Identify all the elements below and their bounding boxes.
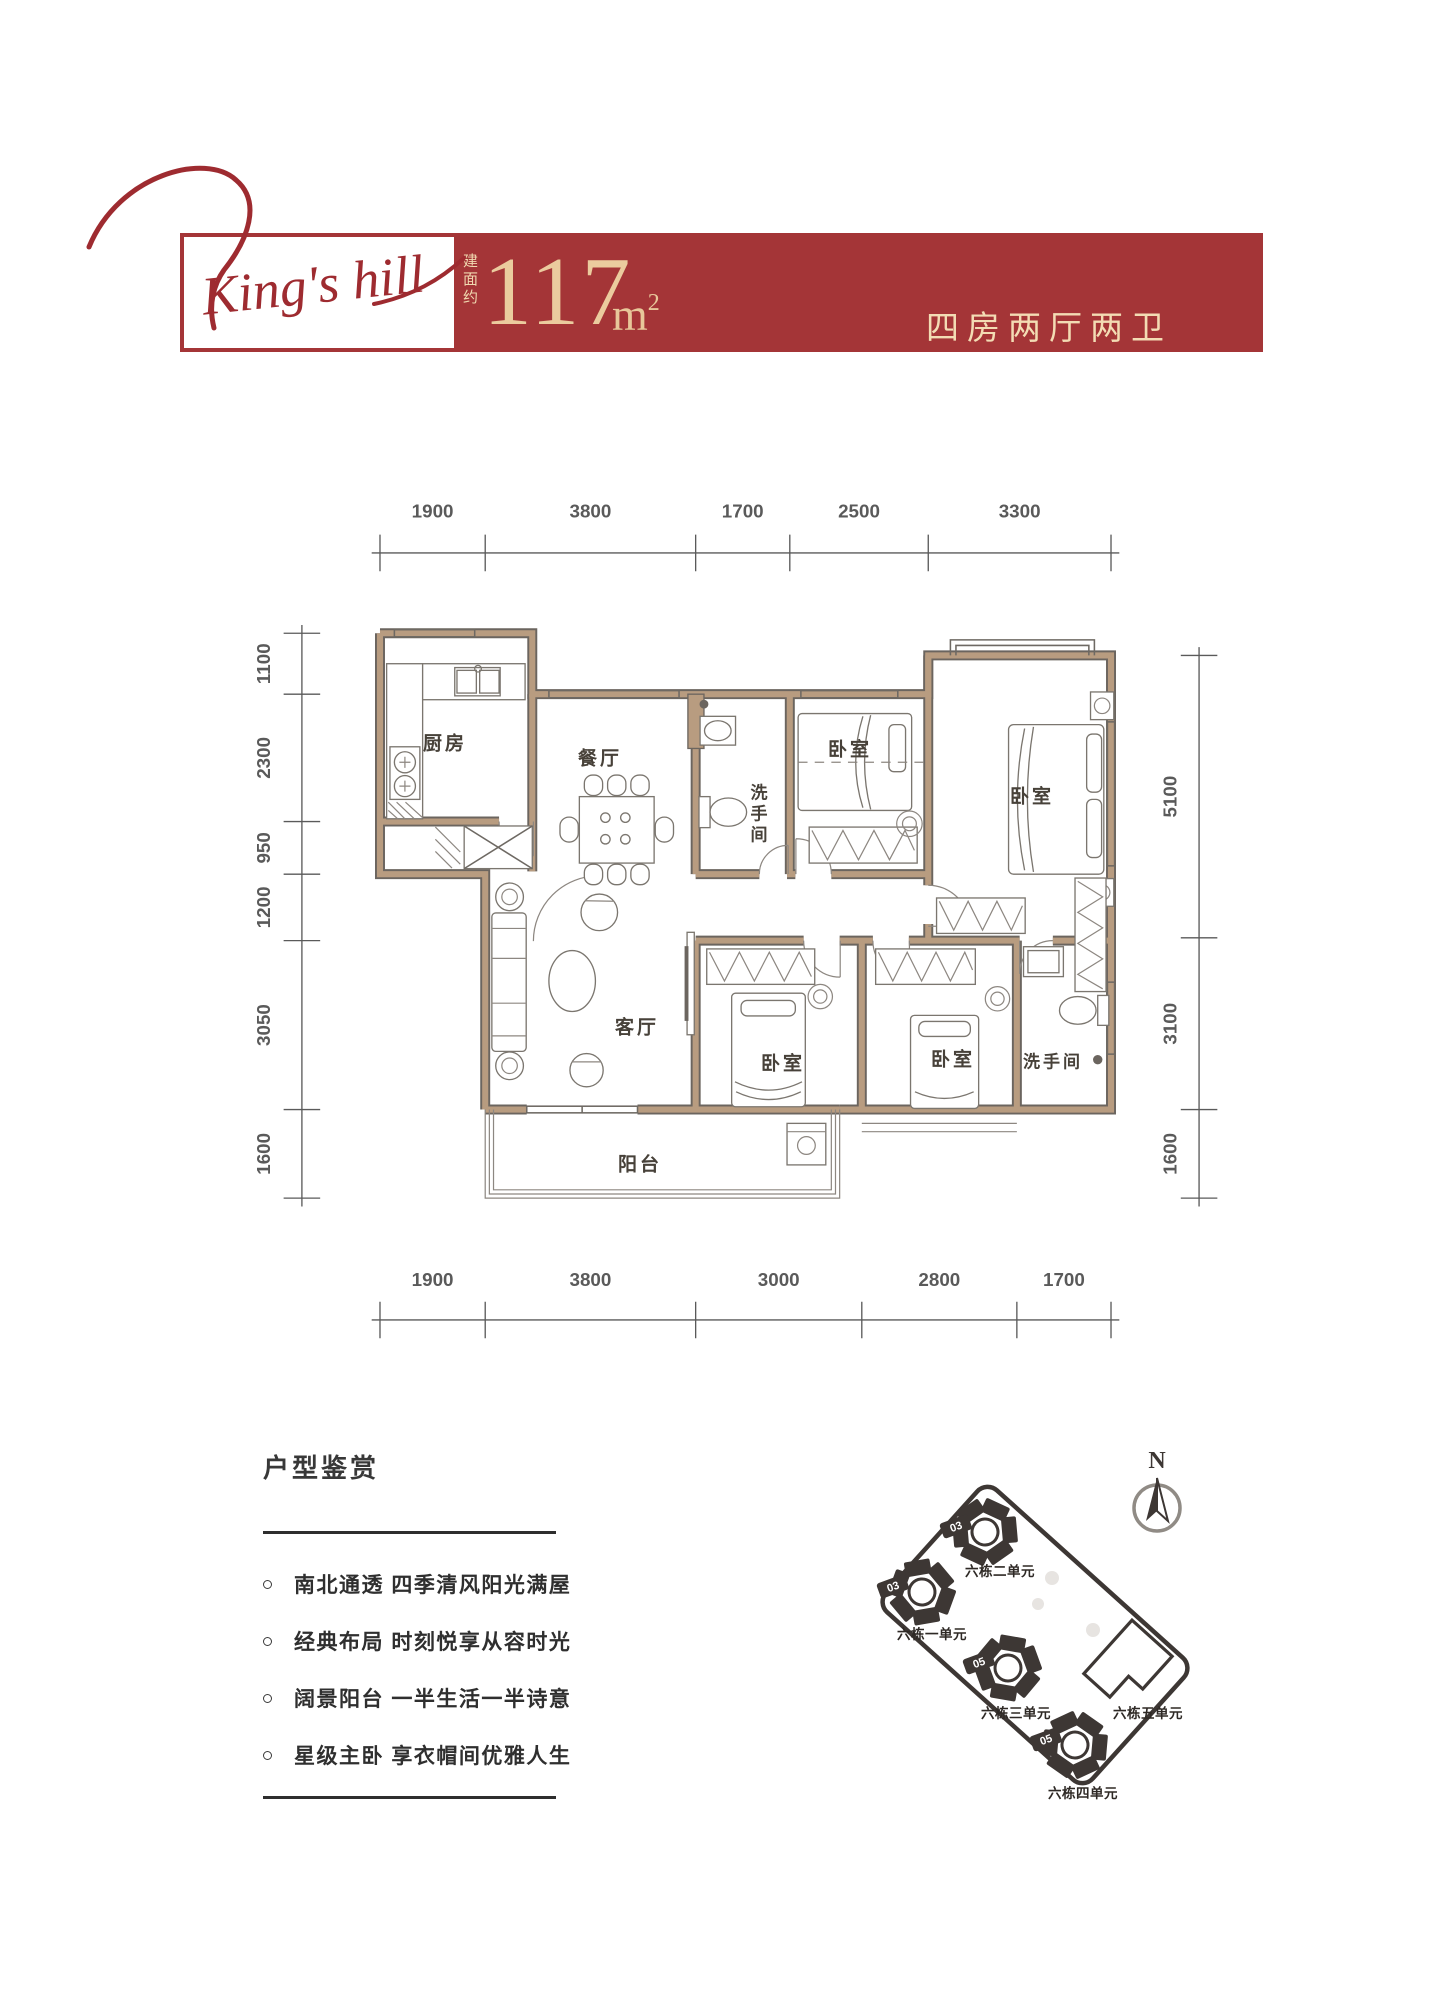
room-label-bath-bottom: 洗手间 — [1023, 1048, 1083, 1073]
floorplan-drawing: 1900 3800 1700 2500 3300 1900 3800 3000 … — [236, 500, 1255, 1348]
site-label-unit-1: 六栋一单元 — [897, 1623, 967, 1643]
appreciation-bullet-2: 经典布局 时刻悦享从容时光 — [263, 1628, 663, 1654]
dim-left-3: 1200 — [253, 886, 274, 928]
bedroom-bottom-2 — [876, 949, 1010, 1108]
divider-bottom — [263, 1796, 556, 1799]
divider-top — [263, 1531, 556, 1534]
balcony-fittings — [787, 1123, 826, 1165]
bathroom-top-fittings — [699, 700, 747, 828]
appreciation-bullet-1: 南北通透 四季清风阳光满屋 — [263, 1571, 663, 1597]
dim-right-1: 3100 — [1159, 1003, 1180, 1045]
dim-left-0: 1100 — [253, 643, 274, 684]
dimension-labels: 1900 3800 1700 2500 3300 1900 3800 3000 … — [253, 501, 1181, 1291]
appreciation-bullet-3: 阔景阳台 一半生活一半诗意 — [263, 1685, 663, 1711]
flyer-page: King's hill 建面约 117 m2 四房两厅两卫 1900 3800 … — [0, 0, 1440, 2003]
dim-bottom-3: 2800 — [918, 1269, 960, 1290]
dim-left-5: 1600 — [253, 1133, 274, 1175]
room-label-kitchen: 厨房 — [423, 729, 467, 756]
dim-left-1: 2300 — [253, 737, 274, 779]
room-label-bath-top: 洗手间 — [745, 784, 770, 847]
bullet-icon — [263, 1694, 272, 1703]
dim-top-0: 1900 — [412, 501, 454, 522]
bullet-text: 经典布局 时刻悦享从容时光 — [294, 1626, 571, 1656]
site-label-unit-4: 六栋四单元 — [1048, 1782, 1118, 1802]
bullet-text: 南北通透 四季清风阳光满屋 — [294, 1569, 571, 1599]
room-label-balcony: 阳台 — [618, 1150, 662, 1177]
kings-hill-logo: King's hill — [74, 152, 474, 362]
bullet-icon — [263, 1751, 272, 1760]
north-label: N — [1148, 1448, 1166, 1474]
dim-right-2: 1600 — [1159, 1133, 1180, 1175]
bullet-text: 阔景阳台 一半生活一半诗意 — [294, 1683, 571, 1713]
room-label-bedroom-1: 卧室 — [761, 1049, 805, 1076]
area-value: 117 — [483, 243, 632, 341]
dim-top-4: 3300 — [999, 501, 1041, 522]
room-label-master-bedroom: 卧室 — [1010, 782, 1054, 809]
dim-bottom-1: 3800 — [570, 1269, 612, 1290]
area-unit-sup: 2 — [648, 290, 660, 316]
compass: N — [1134, 1448, 1180, 1531]
dim-right-0: 5100 — [1159, 776, 1180, 818]
dim-left-4: 3050 — [253, 1004, 274, 1046]
site-label-unit-3: 六栋三单元 — [981, 1702, 1051, 1722]
room-label-bedroom-2: 卧室 — [931, 1045, 975, 1072]
dim-bottom-4: 1700 — [1043, 1269, 1085, 1290]
layout-type-label: 四房两厅两卫 — [926, 301, 1172, 349]
bedroom-bottom-1 — [707, 949, 833, 1107]
dining-table — [560, 775, 674, 885]
appreciation-title: 户型鉴赏 — [263, 1448, 379, 1485]
bullet-text: 星级主卧 享衣帽间优雅人生 — [294, 1740, 571, 1770]
room-label-dining: 餐厅 — [578, 744, 622, 771]
room-label-living: 客厅 — [615, 1013, 659, 1040]
dim-top-2: 1700 — [722, 501, 764, 522]
shaft — [435, 826, 532, 869]
bullet-icon — [263, 1637, 272, 1646]
appreciation-bullet-4: 星级主卧 享衣帽间优雅人生 — [263, 1742, 663, 1768]
site-label-unit-5: 六栋五单元 — [1113, 1702, 1183, 1722]
dim-bottom-2: 3000 — [758, 1269, 800, 1290]
washing-machine — [787, 1123, 826, 1165]
dim-left-2: 950 — [253, 832, 274, 863]
room-label-bedroom-top: 卧室 — [828, 735, 872, 762]
dim-top-3: 2500 — [838, 501, 880, 522]
dim-bottom-0: 1900 — [412, 1269, 454, 1290]
area-unit: m2 — [612, 291, 660, 338]
bullet-icon — [263, 1580, 272, 1589]
living-room-furniture — [492, 883, 694, 1087]
dim-top-1: 3800 — [570, 501, 612, 522]
area-unit-m: m — [612, 289, 648, 340]
site-label-unit-2: 六栋二单元 — [965, 1560, 1035, 1580]
